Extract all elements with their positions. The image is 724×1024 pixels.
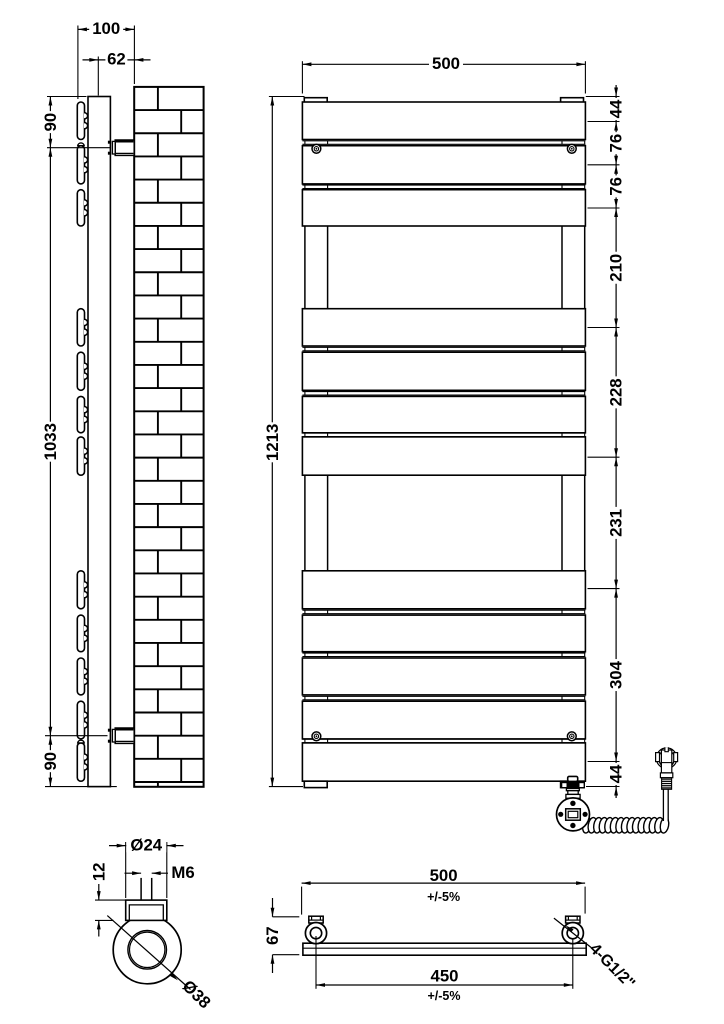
svg-text:500: 500 xyxy=(432,54,460,73)
svg-text:44: 44 xyxy=(607,99,626,118)
svg-text:76: 76 xyxy=(607,177,626,196)
svg-text:M6: M6 xyxy=(171,863,194,882)
svg-text:210: 210 xyxy=(607,254,626,282)
svg-text:450: 450 xyxy=(431,967,459,986)
svg-text:67: 67 xyxy=(263,926,282,945)
svg-text:+/-5%: +/-5% xyxy=(427,989,460,1003)
svg-text:62: 62 xyxy=(107,50,126,69)
svg-text:231: 231 xyxy=(607,509,626,537)
svg-text:90: 90 xyxy=(41,113,60,132)
svg-text:1033: 1033 xyxy=(41,423,60,460)
svg-text:12: 12 xyxy=(89,862,108,881)
svg-text:304: 304 xyxy=(607,660,626,689)
svg-text:90: 90 xyxy=(41,752,60,771)
svg-text:228: 228 xyxy=(607,378,626,406)
svg-text:1213: 1213 xyxy=(263,424,282,461)
svg-text:Ø24: Ø24 xyxy=(130,835,162,854)
svg-text:+/-5%: +/-5% xyxy=(427,890,460,904)
svg-text:100: 100 xyxy=(92,19,120,38)
svg-text:76: 76 xyxy=(607,134,626,153)
svg-text:44: 44 xyxy=(607,764,626,783)
svg-text:500: 500 xyxy=(430,866,458,885)
